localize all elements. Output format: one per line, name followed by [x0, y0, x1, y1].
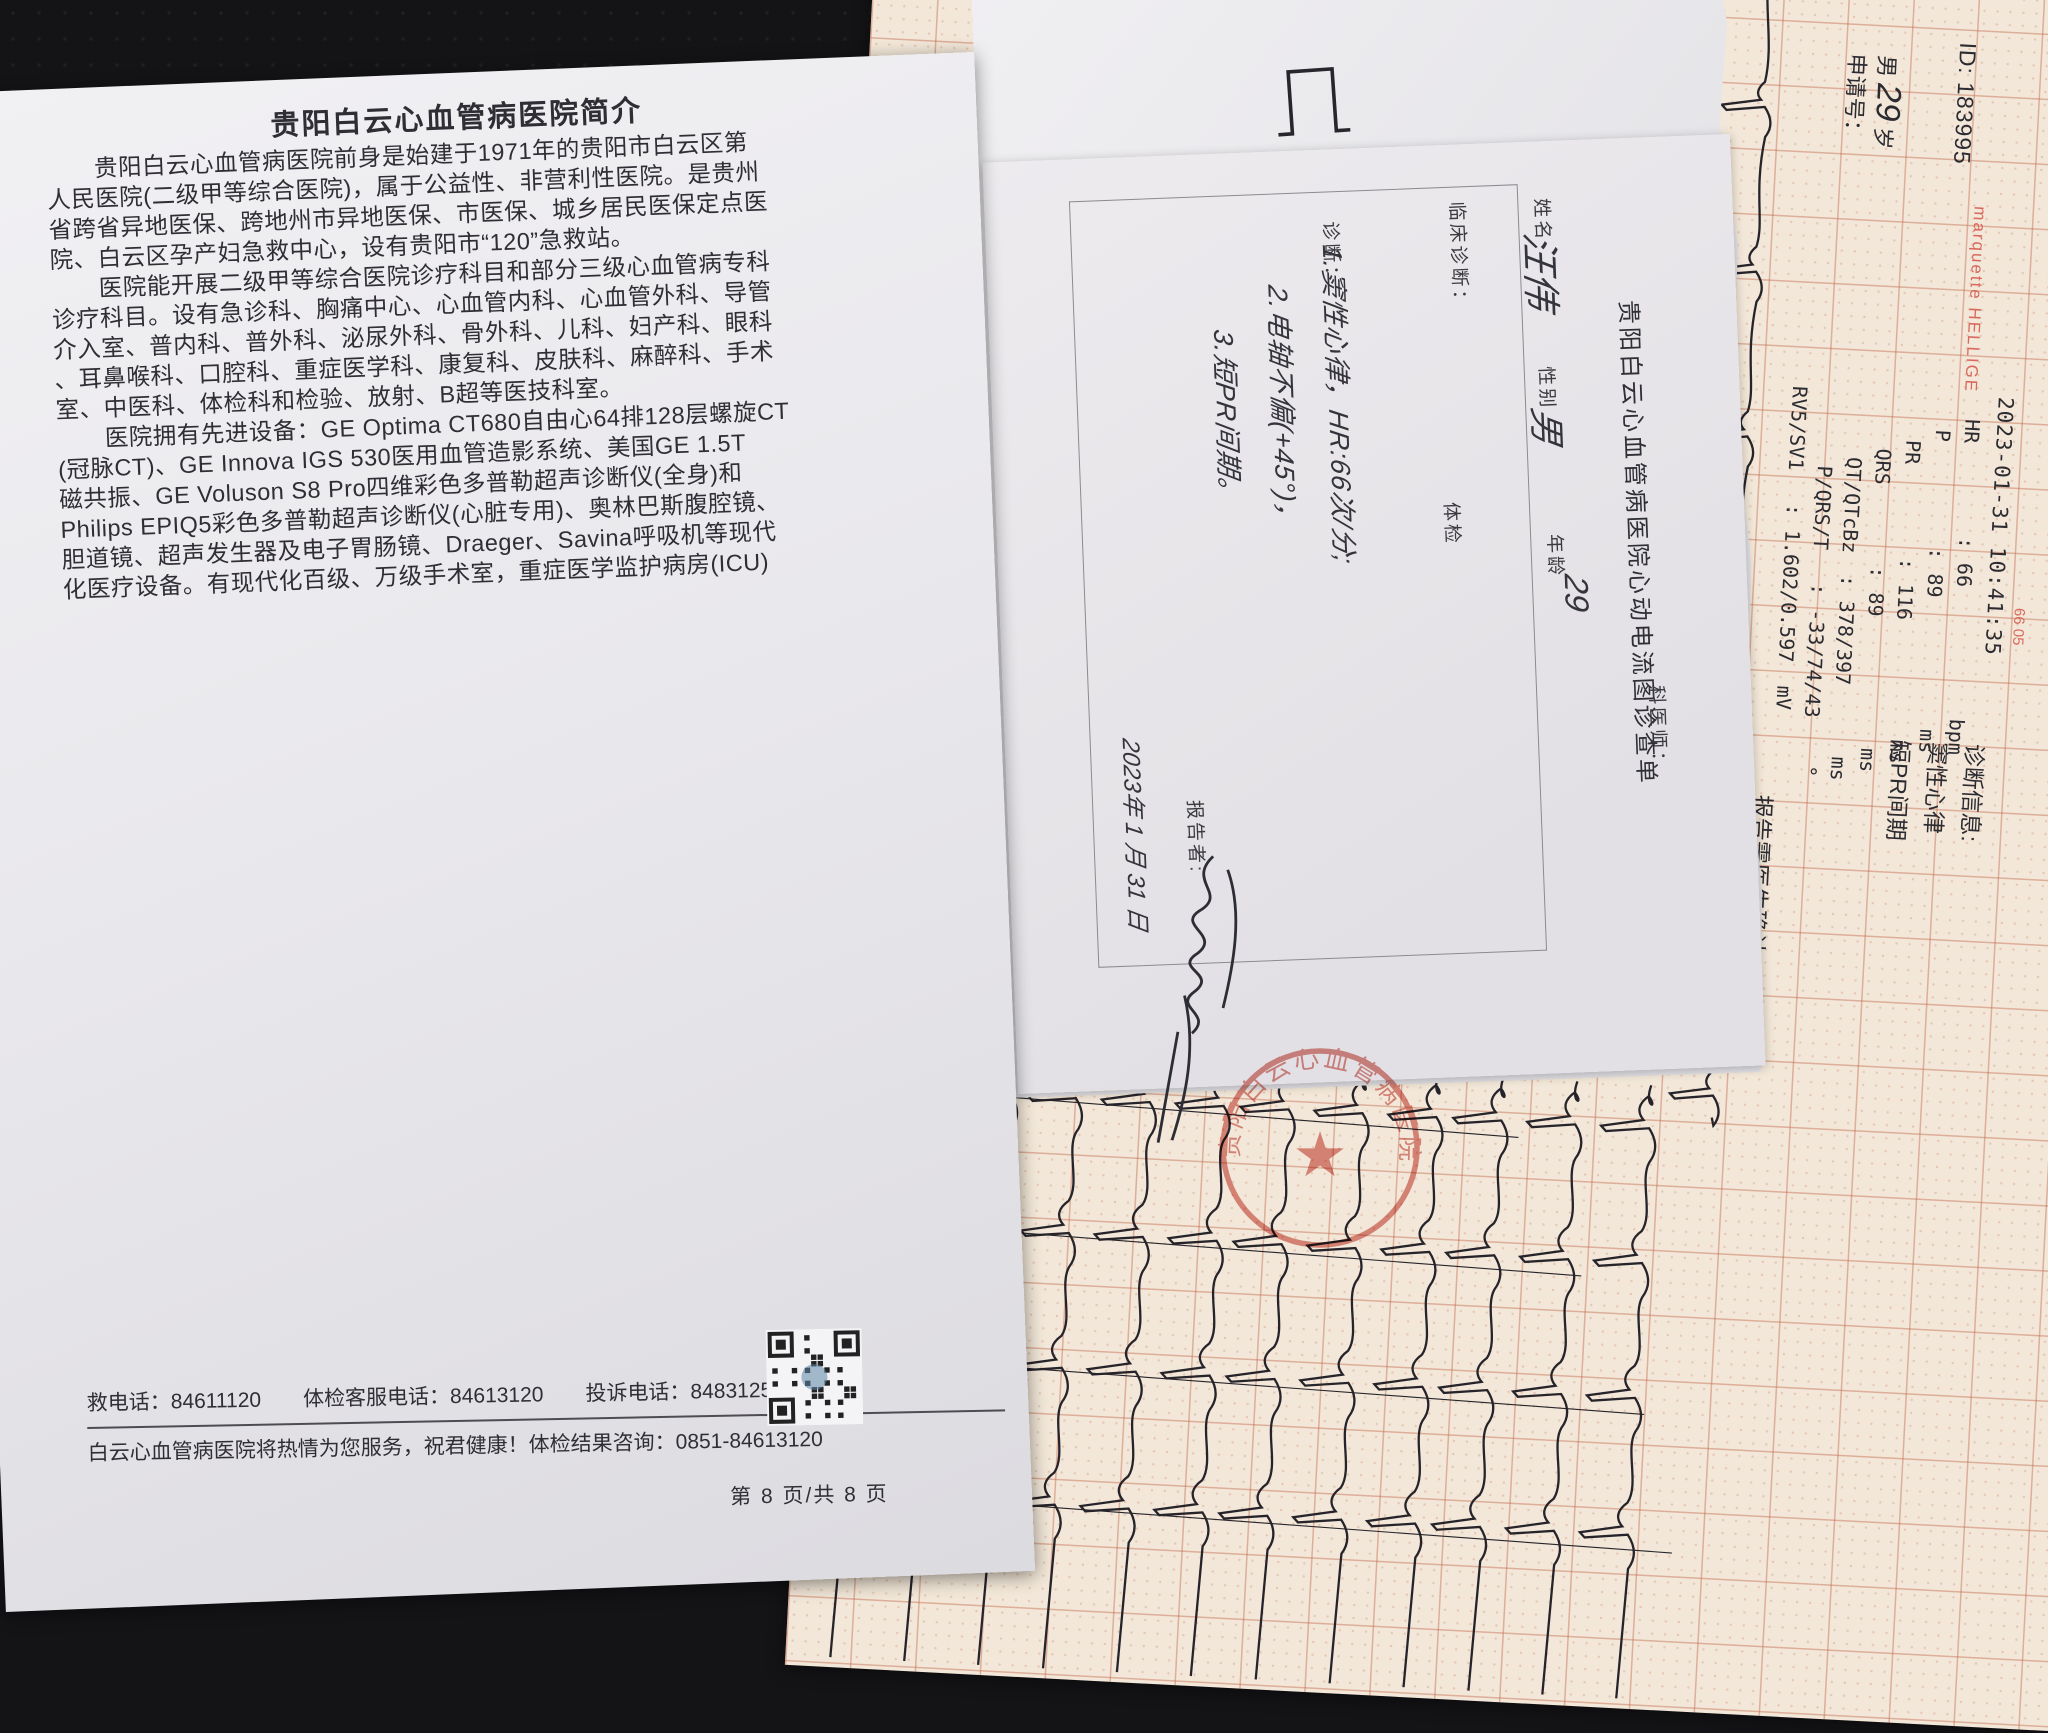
physician-label: 科医师： [1644, 685, 1674, 774]
patient-sex-age: 男 29 岁 申请号： [1837, 53, 1906, 150]
report-date-handwritten: 2023年 1 月 31 日 [1116, 737, 1159, 934]
calibration-mark [1269, 49, 1365, 147]
measurement-label: QRS [1863, 448, 1898, 567]
page-footer: 救电话：84611120 体检客服电话：84613120 投诉电话：848312… [86, 1369, 1006, 1523]
measurement-unit: ms [1852, 747, 1882, 773]
diagnosis-info-block: 诊断信息: 窦性心律 短PR间期 [1877, 739, 1993, 846]
colon: : [1891, 557, 1921, 584]
checkup-label: 体检 [1439, 501, 1468, 546]
measurement-label: RV5/SV1 [1779, 385, 1814, 504]
colon: : [1803, 583, 1833, 610]
sex-value: 男 [1873, 55, 1899, 78]
star-icon: ★ [1292, 1121, 1348, 1190]
name-handwritten: 汪伟 [1514, 231, 1572, 315]
hospital-stamp: 贵阳白云心血管病医院 ★ [1212, 1042, 1428, 1258]
clinical-diagnosis-label: 临床诊断： [1444, 201, 1475, 312]
diagnosis-info-header: 诊断信息: [1950, 743, 1992, 846]
footer-hotlines: 救电话：84611120 体检客服电话：84613120 投诉电话：848312… [86, 1369, 1004, 1417]
measurement-label: P [1922, 429, 1957, 548]
diagnosis-info-item: 窦性心律 [1913, 741, 1955, 844]
footer-service-line: 白云心血管病医院将热情为您服务，祝君健康！体检结果咨询：0851-8461312… [87, 1419, 1005, 1467]
colon: : [1921, 547, 1951, 574]
measurement-unit: ° [1794, 764, 1824, 778]
gender-handwritten: 男 [1522, 405, 1576, 448]
measurement-unit: mV [1768, 685, 1798, 711]
colon: : [1950, 536, 1980, 563]
request-no-label: 申请号： [1837, 53, 1872, 149]
ecg-request-form: 贵阳白云心血管病医院心动电流图诊查单 姓名 汪伟 性别 男 年龄 29 临床诊断… [982, 134, 1765, 1094]
colon: : [1778, 503, 1808, 530]
measurement-label: P/QRS/T [1804, 465, 1839, 584]
diagnosis-line-3: 3.短PR间期。 [1206, 327, 1252, 508]
measurement-unit: ms [1823, 756, 1853, 782]
gender-label: 性别 [1534, 366, 1563, 411]
qr-code [766, 1328, 864, 1426]
colon: : [1832, 574, 1862, 601]
intro-body: 贵阳白云心血管病医院前身是始建于1971年的贵阳市白云区第 人民医院(二级甲等综… [45, 118, 987, 605]
edge-code-marking: 66 05 [2009, 607, 2028, 645]
diagnosis-info-item: 短PR间期 [1877, 739, 1919, 842]
measurement-label: HR [1951, 418, 1986, 537]
age-unit: 岁 [1870, 127, 1896, 150]
measurement-label: QT/QTcBz [1833, 456, 1868, 575]
hospital-intro-page: 贵阳白云心血管病医院简介 贵阳白云心血管病医院前身是始建于1971年的贵阳市白云… [0, 52, 1035, 1612]
measurement-label: PR [1892, 439, 1927, 558]
page-number: 第 8 页/共 8 页 [89, 1475, 1007, 1523]
age-handwritten: 29 [1557, 572, 1597, 614]
colon: : [1861, 566, 1891, 593]
age-handwritten: 29 [1868, 83, 1908, 123]
